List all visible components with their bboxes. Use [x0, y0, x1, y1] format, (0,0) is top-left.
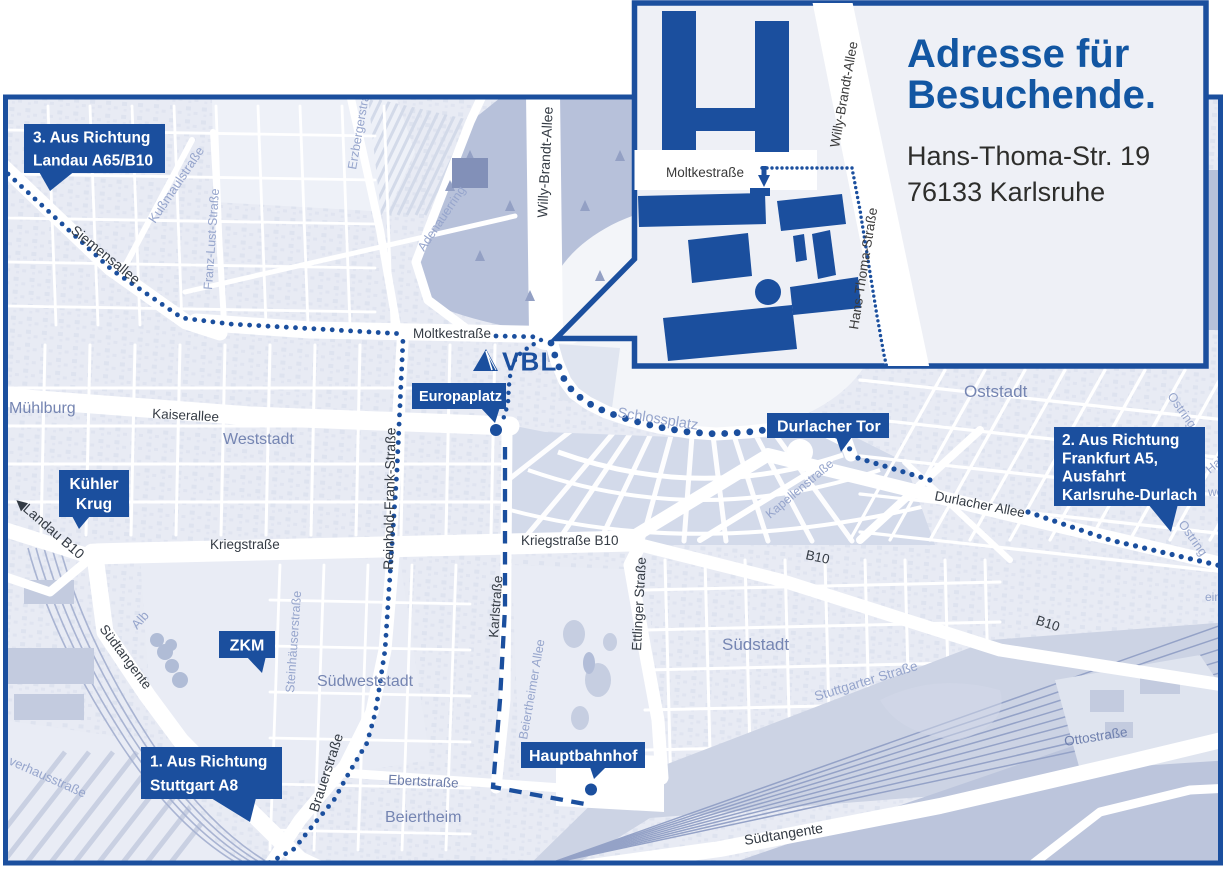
- svg-text:VBL: VBL: [502, 347, 558, 377]
- svg-text:Landau A65/B10: Landau A65/B10: [33, 153, 153, 170]
- svg-text:1. Aus Richtung: 1. Aus Richtung: [150, 754, 267, 771]
- svg-text:Beiertheim: Beiertheim: [385, 809, 461, 826]
- svg-text:Mühlburg: Mühlburg: [9, 400, 76, 417]
- svg-text:Karlsruhe-Durlach: Karlsruhe-Durlach: [1062, 487, 1197, 504]
- svg-text:Südstadt: Südstadt: [722, 635, 789, 654]
- svg-text:Kühler: Kühler: [69, 476, 118, 493]
- svg-text:Besuchende.: Besuchende.: [907, 73, 1156, 117]
- svg-text:76133 Karlsruhe: 76133 Karlsruhe: [907, 177, 1105, 207]
- svg-text:Durlacher Tor: Durlacher Tor: [777, 418, 881, 435]
- svg-text:Krug: Krug: [76, 496, 112, 513]
- svg-text:Reinhold-Frank-Straße: Reinhold-Frank-Straße: [380, 427, 398, 570]
- svg-text:Kriegstraße: Kriegstraße: [210, 537, 280, 552]
- svg-text:3. Aus Richtung: 3. Aus Richtung: [33, 130, 150, 147]
- svg-text:ZKM: ZKM: [230, 637, 265, 654]
- svg-text:2. Aus Richtung: 2. Aus Richtung: [1062, 432, 1179, 449]
- svg-text:Frankfurt A5,: Frankfurt A5,: [1062, 450, 1158, 467]
- svg-text:Weststadt: Weststadt: [223, 431, 294, 448]
- svg-text:Moltkestraße: Moltkestraße: [413, 326, 491, 341]
- svg-text:Stuttgart A8: Stuttgart A8: [150, 778, 238, 795]
- svg-text:Oststadt: Oststadt: [964, 382, 1028, 401]
- svg-text:Kriegstraße B10: Kriegstraße B10: [521, 533, 619, 548]
- svg-text:Ausfahrt: Ausfahrt: [1062, 469, 1126, 486]
- svg-text:Moltkestraße: Moltkestraße: [666, 165, 744, 180]
- svg-text:Hauptbahnhof: Hauptbahnhof: [529, 748, 638, 765]
- svg-text:Südweststadt: Südweststadt: [317, 673, 414, 690]
- svg-text:Europaplatz: Europaplatz: [419, 389, 502, 405]
- svg-text:Hans-Thoma-Str. 19: Hans-Thoma-Str. 19: [907, 141, 1150, 171]
- svg-text:Adresse für: Adresse für: [907, 32, 1129, 76]
